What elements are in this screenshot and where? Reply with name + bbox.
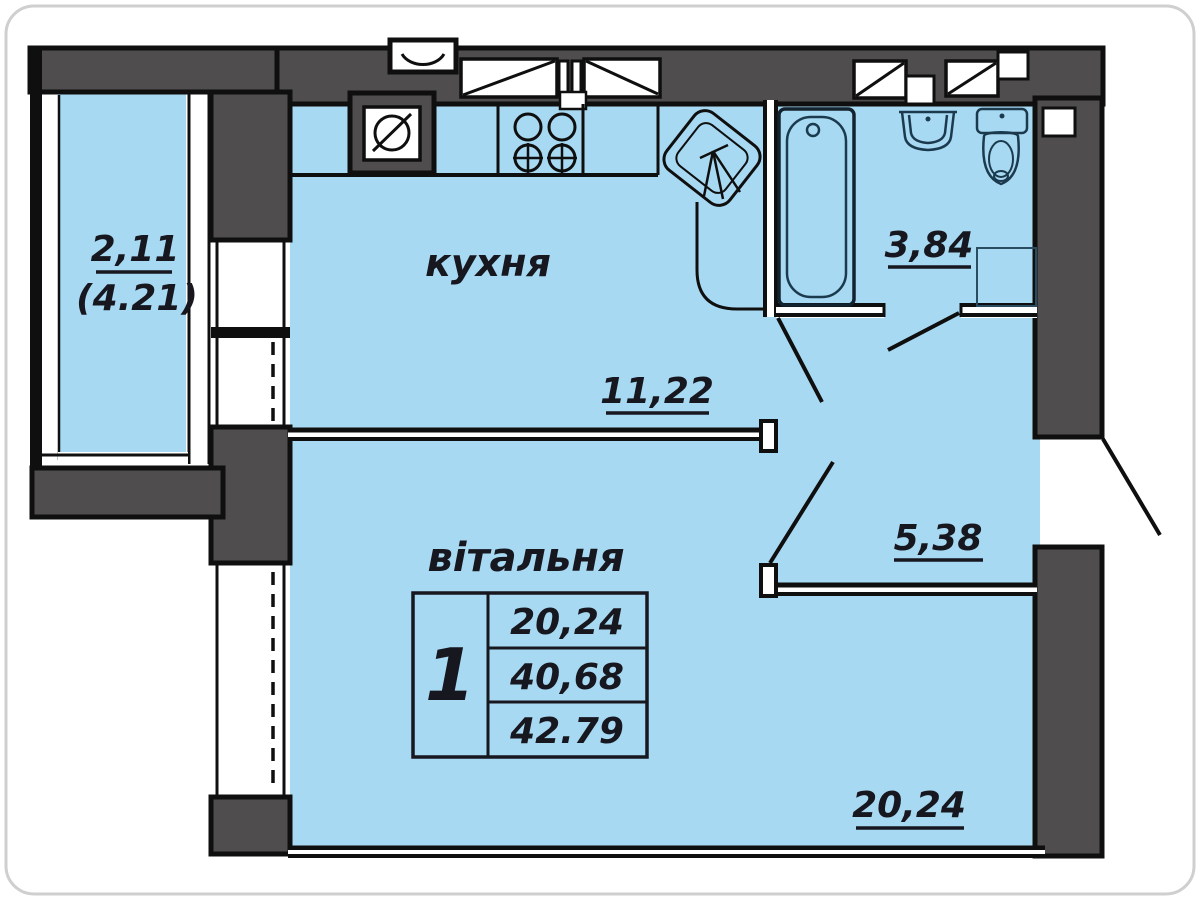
hall-area: 5,38 [894,518,983,559]
wall-top-left [30,48,280,92]
wall-pillar-c [211,797,290,854]
balcony-area-coeff: 2,11 [91,229,180,270]
bathroom-area: 3,84 [885,225,974,266]
kitchen-label: кухня [425,241,551,285]
living-area: 20,24 [852,785,966,826]
kitchen-area: 11,22 [600,371,714,412]
wall-pillar-a [211,92,290,240]
floor-plan-page: 2,11 (4.21) кухня 11,22 3,84 5,38 віталь… [0,0,1200,900]
floor-plan-drawing: 2,11 (4.21) кухня 11,22 3,84 5,38 віталь… [0,0,1200,900]
partition-end-cap [761,565,776,596]
partition-end-cap [761,421,776,451]
wall-arm-left [32,468,223,517]
table-living-area: 20,24 [510,602,624,643]
living-label: вітальня [427,535,624,581]
balcony-area-full: (4.21) [76,278,198,319]
table-rooms-count: 1 [425,633,475,717]
table-area-no-balcony: 40,68 [509,657,624,698]
kitchen-bath-wall [765,100,776,317]
wall-right-lower [1035,547,1102,856]
table-total-area: 42.79 [509,711,624,752]
wall-bottom [288,848,1045,856]
balcony-outer-edge [30,48,42,468]
window-transom-bar [211,327,290,338]
vent-box [390,40,456,72]
washing-machine-icon [350,93,434,173]
wall-niche [1043,108,1075,136]
wall-right-upper [1035,98,1102,437]
